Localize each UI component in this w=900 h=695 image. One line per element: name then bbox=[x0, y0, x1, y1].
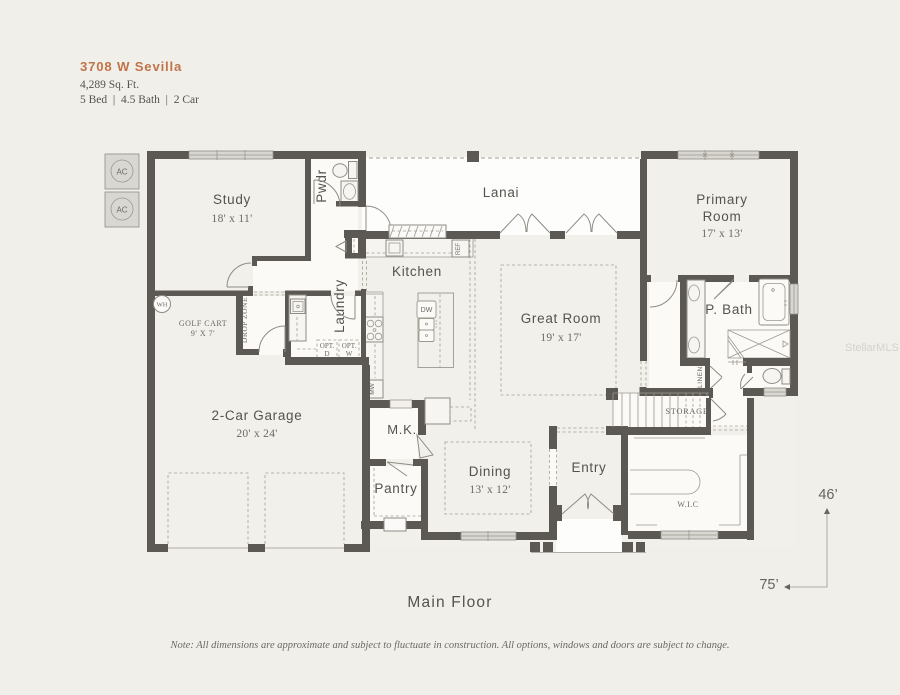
svg-text:75’: 75’ bbox=[759, 577, 778, 593]
svg-text:4,289 Sq. Ft.: 4,289 Sq. Ft. bbox=[80, 79, 139, 91]
svg-text:STORAGE: STORAGE bbox=[665, 406, 708, 416]
svg-text:Laundry: Laundry bbox=[332, 279, 347, 333]
svg-text:REF: REF bbox=[456, 243, 462, 255]
svg-text:Great Room: Great Room bbox=[521, 311, 602, 326]
svg-text:MW: MW bbox=[369, 382, 376, 394]
svg-text:Primary: Primary bbox=[696, 192, 747, 207]
svg-text:P. Bath: P. Bath bbox=[705, 302, 752, 317]
svg-text:LINEN: LINEN bbox=[697, 366, 704, 388]
svg-text:Study: Study bbox=[213, 192, 251, 207]
svg-text:9' X 7': 9' X 7' bbox=[191, 329, 215, 338]
svg-text:Main Floor: Main Floor bbox=[407, 594, 492, 611]
svg-text:3708 W Sevilla: 3708 W Sevilla bbox=[80, 59, 182, 74]
svg-text:WH: WH bbox=[157, 302, 168, 309]
svg-text:Room: Room bbox=[703, 209, 742, 224]
svg-text:18' x 11': 18' x 11' bbox=[212, 213, 253, 225]
svg-text:DW: DW bbox=[421, 307, 433, 314]
svg-text:2-Car Garage: 2-Car Garage bbox=[212, 408, 303, 423]
svg-text:5 Bed | 4.5 Bath | 2 Car: 5 Bed | 4.5 Bath | 2 Car bbox=[80, 94, 199, 106]
svg-text:19' x 17': 19' x 17' bbox=[540, 332, 581, 344]
svg-text:AC: AC bbox=[116, 168, 127, 177]
svg-text:DROP ZONE: DROP ZONE bbox=[240, 297, 249, 343]
svg-text:Pwdr: Pwdr bbox=[314, 169, 329, 203]
svg-text:OPT.: OPT. bbox=[320, 342, 335, 350]
svg-text:20' x 24': 20' x 24' bbox=[236, 428, 277, 440]
svg-text:Pantry: Pantry bbox=[374, 481, 417, 496]
svg-text:StellarMLS: StellarMLS bbox=[845, 342, 899, 354]
svg-text:AC: AC bbox=[116, 206, 127, 215]
svg-text:D: D bbox=[324, 350, 329, 358]
svg-text:W: W bbox=[346, 350, 353, 358]
svg-text:Lanai: Lanai bbox=[483, 185, 520, 200]
svg-text:M.K.: M.K. bbox=[387, 422, 417, 437]
svg-text:46’: 46’ bbox=[818, 487, 837, 503]
svg-text:Entry: Entry bbox=[571, 460, 606, 475]
svg-text:GOLF CART: GOLF CART bbox=[179, 319, 227, 328]
svg-text:Kitchen: Kitchen bbox=[392, 264, 442, 279]
svg-text:OPT.: OPT. bbox=[342, 342, 357, 350]
svg-text:17' x 13': 17' x 13' bbox=[701, 228, 742, 240]
svg-text:W.I.C: W.I.C bbox=[677, 500, 698, 509]
svg-text:Dining: Dining bbox=[469, 464, 511, 479]
svg-text:13' x 12': 13' x 12' bbox=[469, 484, 510, 496]
svg-text:Note: All dimensions are appro: Note: All dimensions are approximate and… bbox=[170, 640, 730, 651]
